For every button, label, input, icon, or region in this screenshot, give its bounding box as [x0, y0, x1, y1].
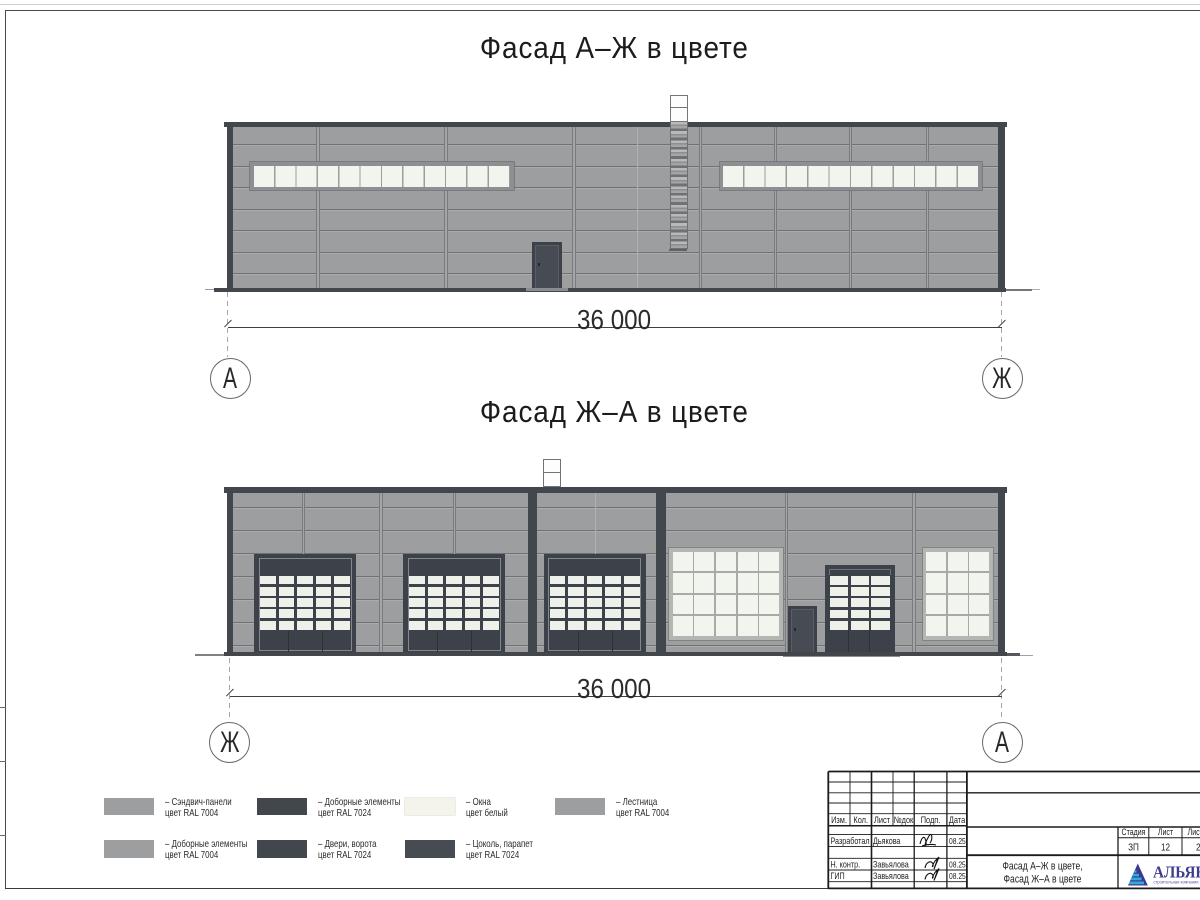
svg-text:12: 12	[1161, 840, 1170, 852]
svg-text:Подп.: Подп.	[921, 814, 941, 825]
svg-text:№док: №док	[894, 814, 914, 825]
svg-text:Листов: Листов	[1188, 827, 1200, 837]
svg-text:Фасад А–Ж в цвете,: Фасад А–Ж в цвете,	[1002, 861, 1082, 873]
svg-text:24: 24	[1196, 840, 1200, 852]
svg-text:Лист: Лист	[1158, 827, 1174, 837]
svg-text:08.25: 08.25	[949, 860, 966, 870]
svg-text:Дьякова: Дьякова	[873, 836, 901, 846]
svg-text:08.25: 08.25	[949, 871, 966, 881]
svg-text:Разработал: Разработал	[831, 836, 870, 846]
svg-text:Дата: Дата	[949, 814, 966, 825]
svg-text:строительная компания: строительная компания	[1154, 879, 1200, 884]
svg-text:Завьялова: Завьялова	[873, 860, 909, 870]
svg-text:08.25: 08.25	[949, 836, 966, 846]
svg-text:Кол.: Кол.	[853, 814, 868, 825]
svg-text:ГИП: ГИП	[831, 871, 845, 881]
svg-text:Фасад Ж–А в цвете: Фасад Ж–А в цвете	[1004, 874, 1082, 886]
svg-text:Завьялова: Завьялова	[873, 871, 909, 881]
svg-text:Н. контр.: Н. контр.	[831, 860, 861, 870]
svg-text:ЗП: ЗП	[1128, 840, 1139, 852]
svg-text:Лист: Лист	[874, 814, 890, 825]
svg-text:Стадия: Стадия	[1122, 827, 1146, 837]
svg-text:Изм.: Изм.	[831, 814, 847, 825]
